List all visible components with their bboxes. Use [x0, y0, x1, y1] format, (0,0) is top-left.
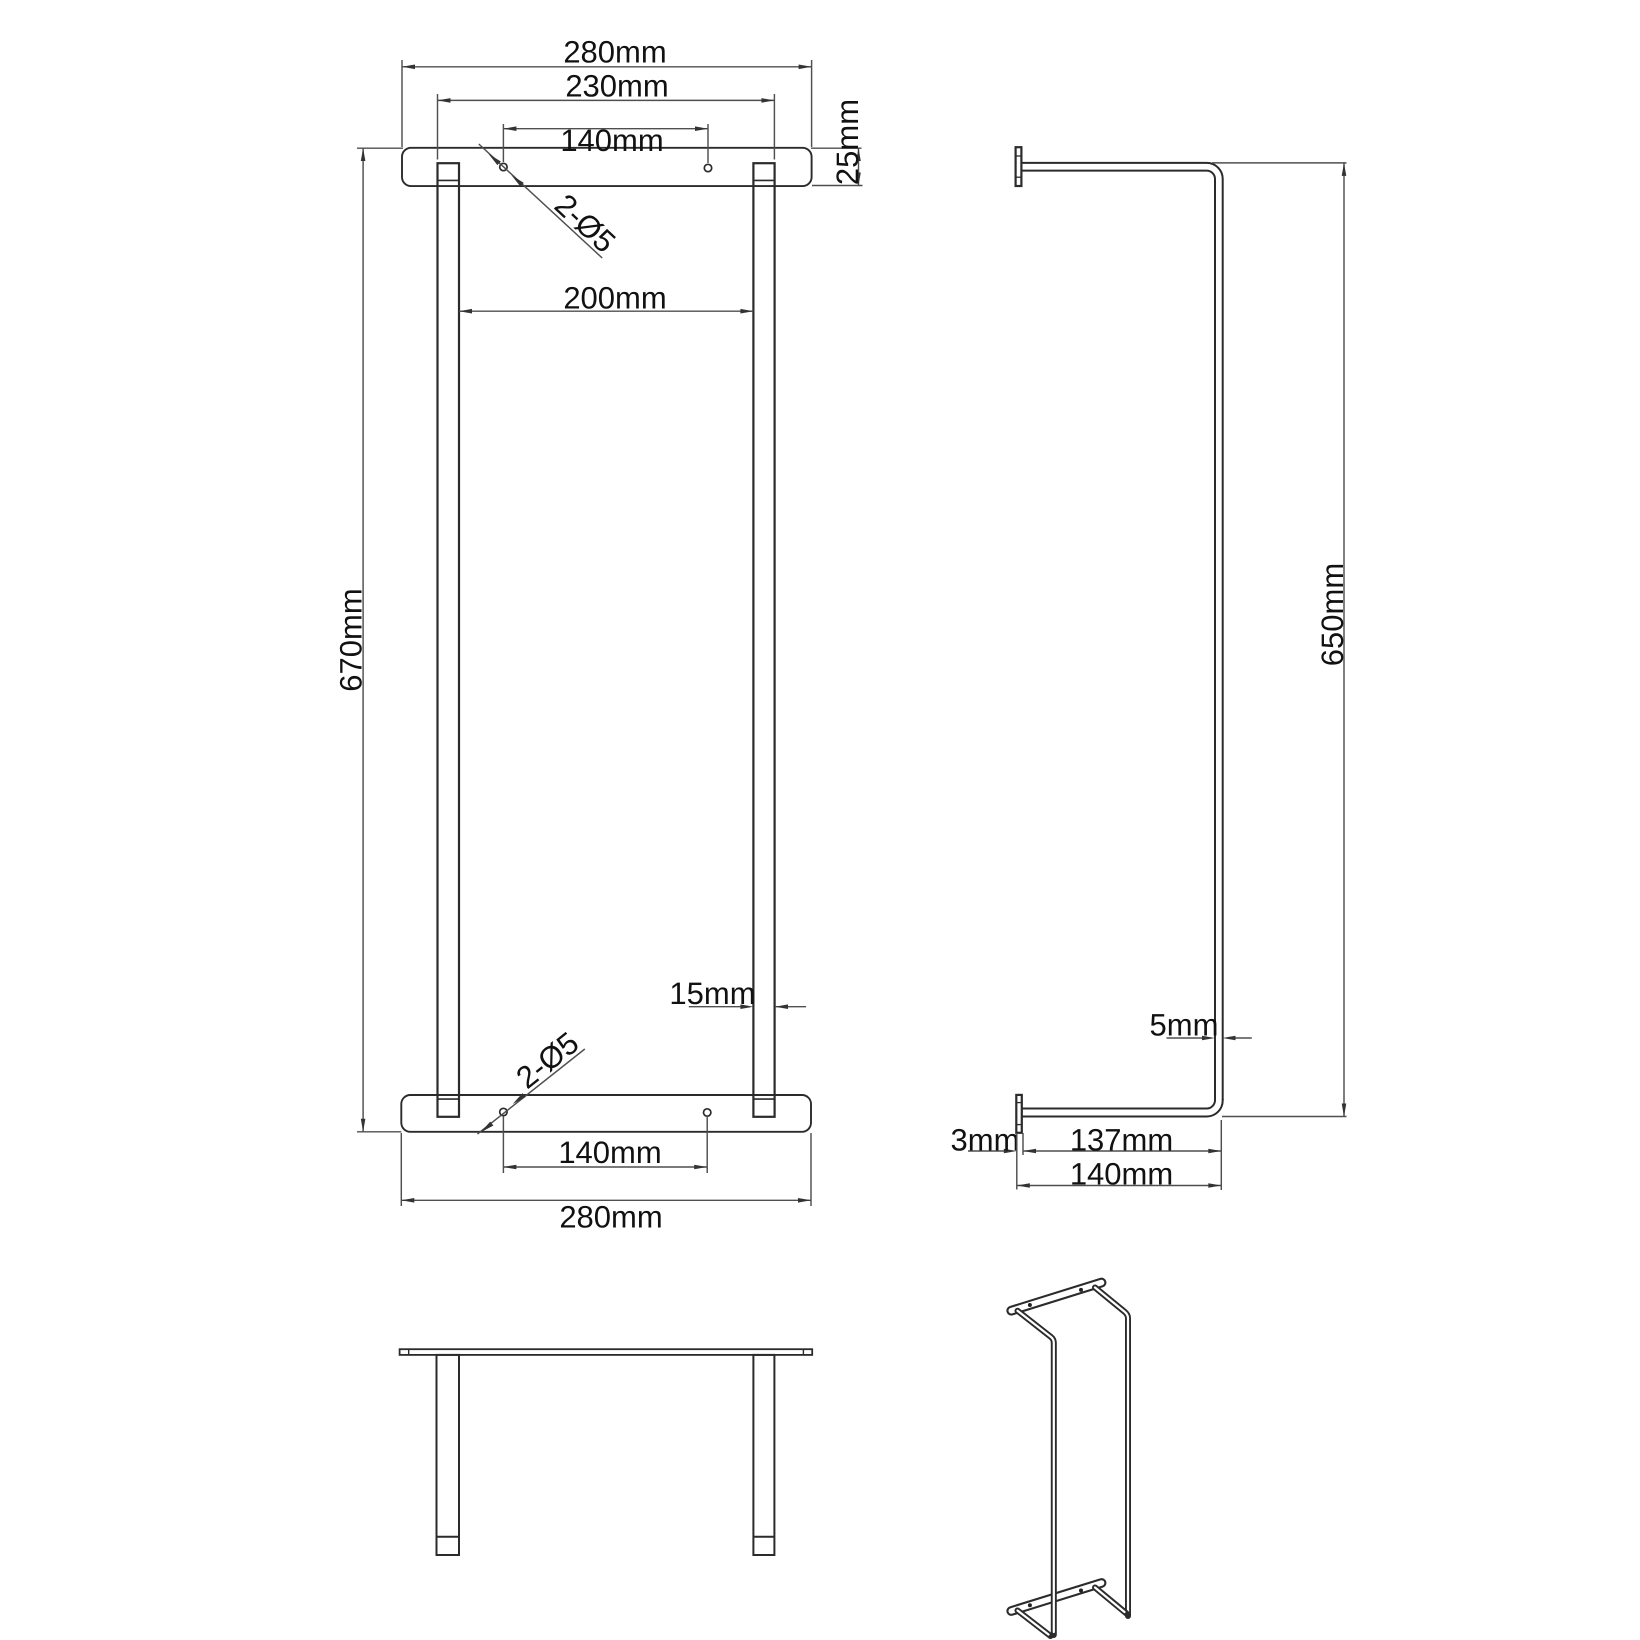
- svg-text:670mm: 670mm: [333, 588, 368, 691]
- svg-text:280mm: 280mm: [563, 35, 666, 70]
- svg-text:25mm: 25mm: [830, 99, 865, 185]
- svg-text:280mm: 280mm: [559, 1200, 662, 1235]
- svg-text:200mm: 200mm: [563, 281, 666, 316]
- svg-text:15mm: 15mm: [669, 976, 755, 1011]
- svg-text:140mm: 140mm: [560, 123, 663, 158]
- svg-text:5mm: 5mm: [1150, 1008, 1219, 1043]
- svg-text:650mm: 650mm: [1315, 563, 1350, 666]
- svg-text:140mm: 140mm: [558, 1135, 661, 1170]
- svg-text:230mm: 230mm: [565, 69, 668, 104]
- svg-text:140mm: 140mm: [1070, 1157, 1173, 1192]
- svg-text:137mm: 137mm: [1070, 1122, 1173, 1157]
- svg-text:3mm: 3mm: [951, 1122, 1020, 1157]
